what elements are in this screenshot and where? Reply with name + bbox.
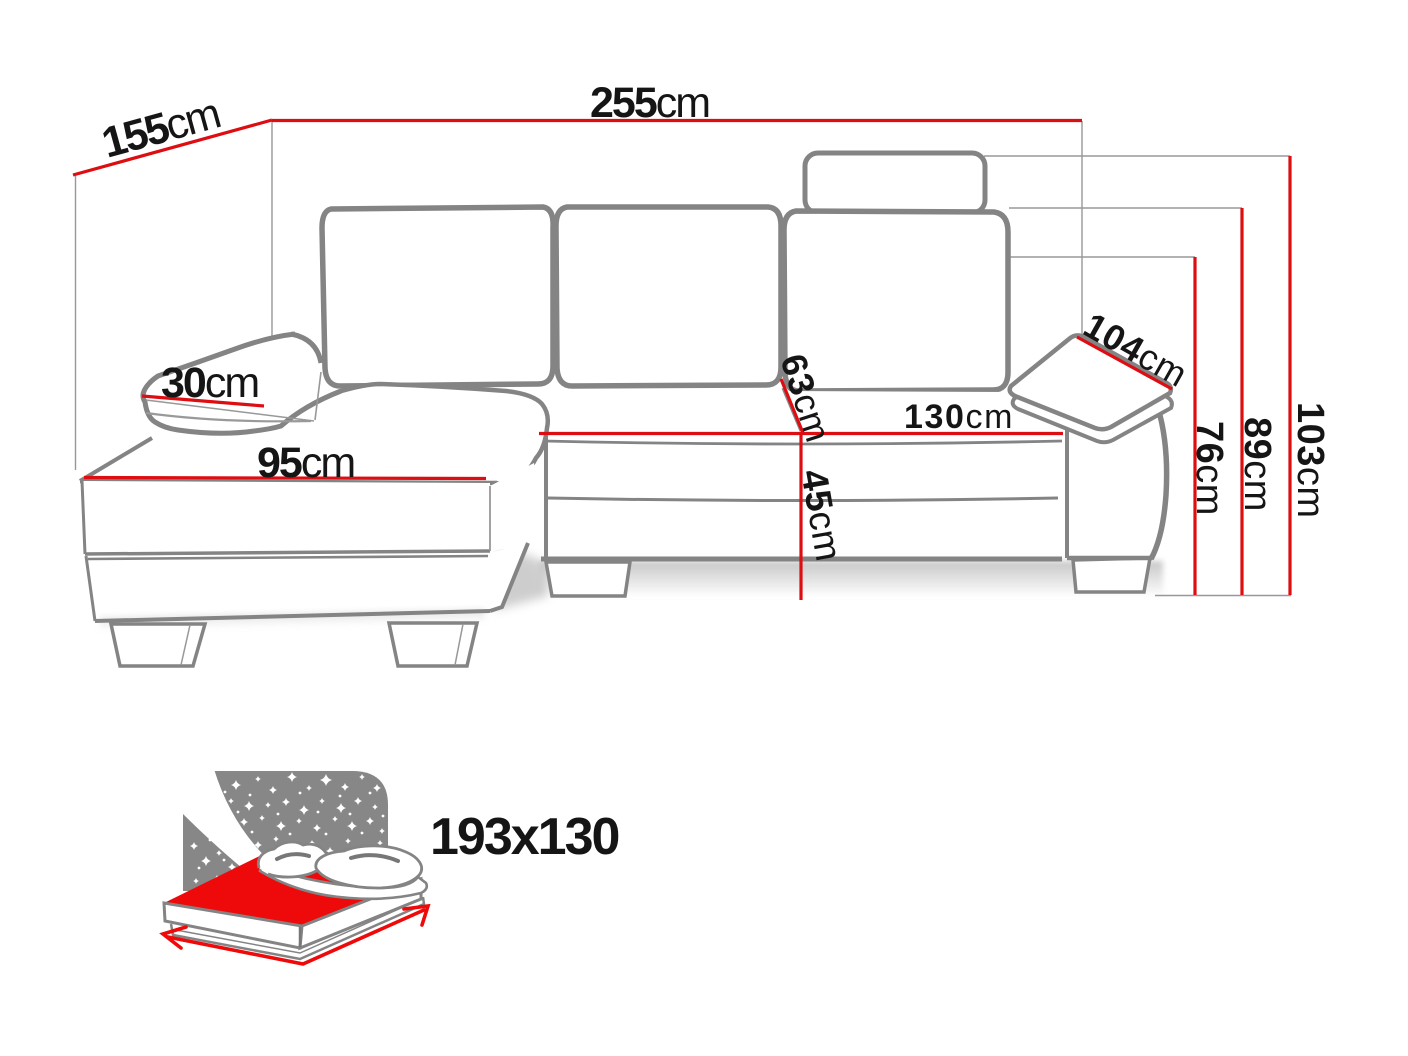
- svg-text:130cm: 130cm: [904, 398, 1014, 436]
- svg-text:30cm: 30cm: [161, 359, 258, 407]
- svg-text:103cm: 103cm: [1289, 402, 1331, 519]
- svg-text:95cm: 95cm: [257, 439, 354, 487]
- svg-text:193x130: 193x130: [430, 808, 619, 866]
- svg-text:76cm: 76cm: [1188, 421, 1230, 516]
- svg-text:255cm: 255cm: [590, 79, 709, 127]
- svg-text:89cm: 89cm: [1236, 417, 1278, 512]
